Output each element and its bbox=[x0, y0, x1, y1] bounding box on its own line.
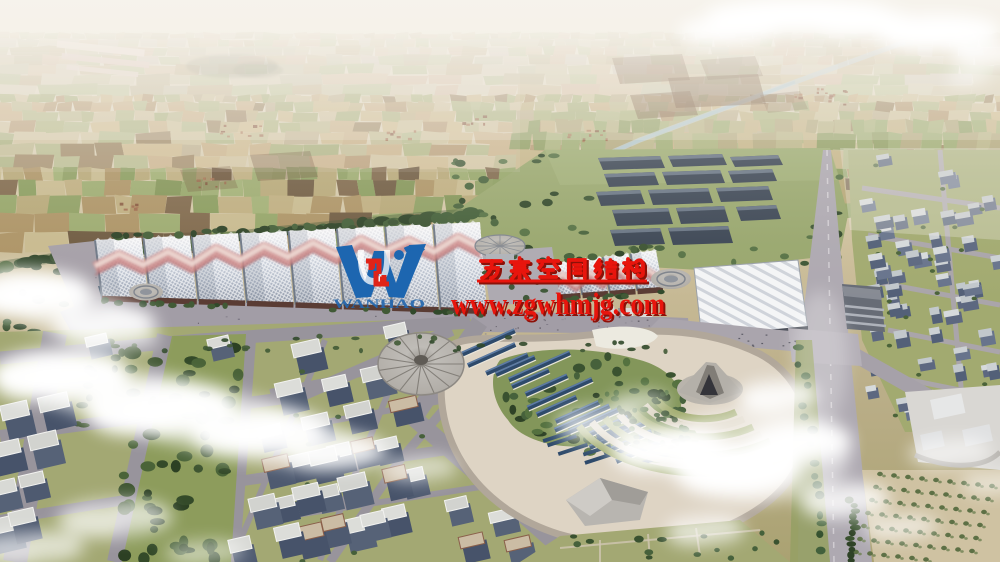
svg-text:WANHAO: WANHAO bbox=[333, 297, 425, 311]
svg-text:www.zgwhmjg.com: www.zgwhmjg.com bbox=[451, 286, 665, 321]
